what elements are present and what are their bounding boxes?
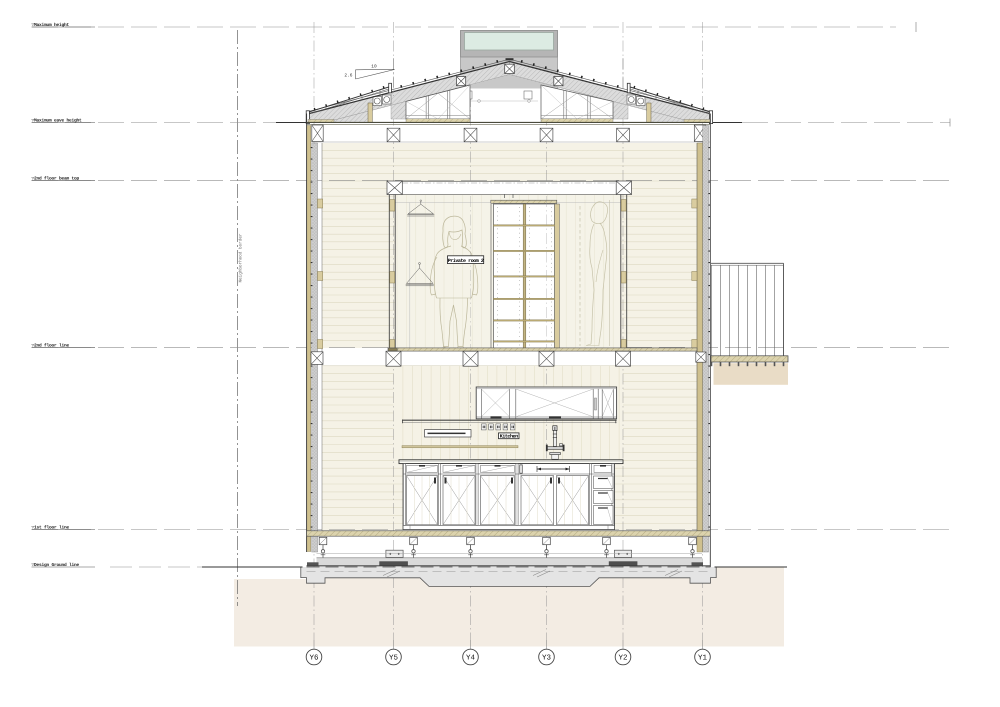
svg-text:Neighborhood border: Neighborhood border [238,233,244,282]
svg-text:Y3: Y3 [542,654,552,663]
svg-text:Kitchen: Kitchen [500,434,518,440]
svg-text:▽Maximum height: ▽Maximum height [32,22,70,28]
svg-text:Private room 2: Private room 2 [448,258,484,264]
svg-text:10: 10 [371,64,377,70]
svg-text:Y1: Y1 [698,655,708,663]
svg-text:Y4: Y4 [466,655,476,663]
svg-text:2.6: 2.6 [344,73,352,79]
svg-text:Y6: Y6 [309,654,319,663]
svg-text:▽2nd floor line: ▽2nd floor line [32,343,70,349]
svg-text:Y2: Y2 [618,654,627,663]
svg-text:Y5: Y5 [389,655,399,663]
